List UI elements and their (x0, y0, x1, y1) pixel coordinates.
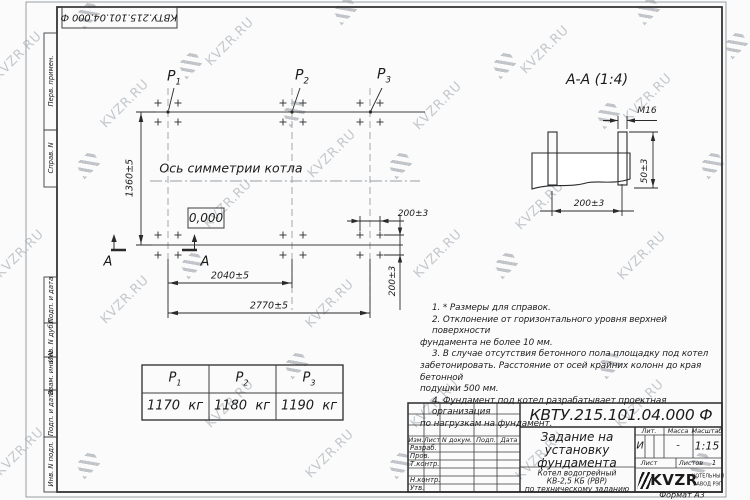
note-line: забетонировать. Расстояние от осей крайн… (420, 361, 720, 384)
role-label: Т.контр. (410, 460, 439, 468)
dim-bolt-x: 200±3 (398, 209, 428, 219)
mass-value: - (676, 441, 679, 452)
note-line: 2. Отклонение от горизонтального уровня … (420, 315, 720, 338)
p3-label: P3 (377, 67, 391, 86)
note-line: 1. * Размеры для справок. (420, 303, 720, 315)
doc-number-top: КВТУ.215.101.04.000 Ф (61, 12, 177, 23)
note-line: подушки 500 мм. (420, 384, 720, 396)
drawing-title-line: Задание на (541, 430, 614, 444)
rev-header: Лист (424, 436, 440, 444)
mass-label: Масса (668, 427, 689, 435)
kvzr-logo-text: KVZR (650, 471, 698, 489)
section-letter-right: А (201, 255, 210, 270)
rev-header: N докум. (442, 436, 472, 444)
section-cut-marks (111, 234, 197, 250)
dim-width-mid: 2040±5 (211, 271, 249, 282)
anchor-bolt-crosses (155, 100, 384, 259)
drawing-sheet: KVZR.RUKVZR.RUKVZR.RUKVZR.RUKVZR.RUKVZR.… (0, 0, 750, 500)
rev-header: Подп. (476, 436, 496, 444)
role-label: Разраб. (410, 444, 437, 452)
symmetry-axis-label: Ось симметрии котла (159, 161, 302, 176)
load-table-header-cell: P2 (236, 371, 249, 388)
dim-m16-lines (603, 116, 657, 129)
rev-header: Изм. (408, 436, 423, 444)
dim-height: 1360±5 (125, 159, 136, 197)
dim-spacing: 200±3 (574, 199, 604, 209)
load-table-value-cell: 1170 кг (147, 399, 203, 414)
load-table-header-cell: P1 (169, 371, 182, 388)
section-letter-left: А (104, 255, 113, 270)
lit-value: И (636, 441, 643, 452)
plan-view (111, 88, 425, 318)
p-leaders (166, 88, 382, 114)
sheets-label: Листов (679, 459, 703, 467)
sheet-label: Лист (641, 459, 657, 467)
rev-header: Дата (501, 436, 518, 444)
dim-height-lines (136, 112, 156, 245)
logo-caption-line: ЗАВОД РЭП (693, 483, 722, 488)
p1-label: P1 (167, 69, 181, 88)
product-name-line: по техническому заданию (525, 485, 629, 494)
role-label: Утв. (410, 484, 424, 492)
margin-label: Взам. инв. N (47, 351, 55, 395)
margin-label: Перв. примен. (47, 55, 55, 106)
lit-label: Лит. (642, 427, 657, 435)
p2-label: P2 (295, 68, 309, 87)
format-label: Формат А3 (659, 491, 705, 500)
section-title: А-А (1:4) (566, 72, 628, 88)
margin-label: Подп. и дата (47, 390, 55, 436)
margin-label: Инв. N подл. (47, 442, 55, 487)
scale-label: Масштаб (692, 427, 723, 435)
margin-label: Справ. N (47, 142, 55, 173)
bolt-size-label: М16 (637, 106, 656, 116)
dim-bolt-y: 200±3 (388, 266, 398, 296)
margin-label: Подп. и дата (47, 277, 55, 323)
role-label: Н.контр. (410, 476, 440, 484)
role-label: Пров. (410, 452, 430, 460)
scale-value: 1:15 (695, 440, 720, 453)
title-block-doc-number: КВТУ.215.101.04.000 Ф (530, 406, 713, 424)
note-line: 3. В случае отсутствия бетонного пола пл… (420, 349, 720, 361)
dim-bolt-x-lines (347, 216, 404, 231)
load-table-value-cell: 1190 кг (281, 399, 337, 414)
drawing-title-line: установку (545, 443, 610, 457)
dim-width-total: 2770±5 (250, 301, 288, 312)
note-line: фундамента не более 10 мм. (420, 338, 720, 350)
logo-caption-line: КОТЕЛЬНЫЙ (692, 475, 724, 480)
dim-protrusion: 50±3 (640, 159, 650, 184)
sheets-value: 1 (712, 459, 716, 467)
load-table-header-cell: P3 (303, 371, 316, 388)
elevation-mark: 0,000 (189, 211, 223, 225)
load-table-value-cell: 1180 кг (214, 399, 270, 414)
